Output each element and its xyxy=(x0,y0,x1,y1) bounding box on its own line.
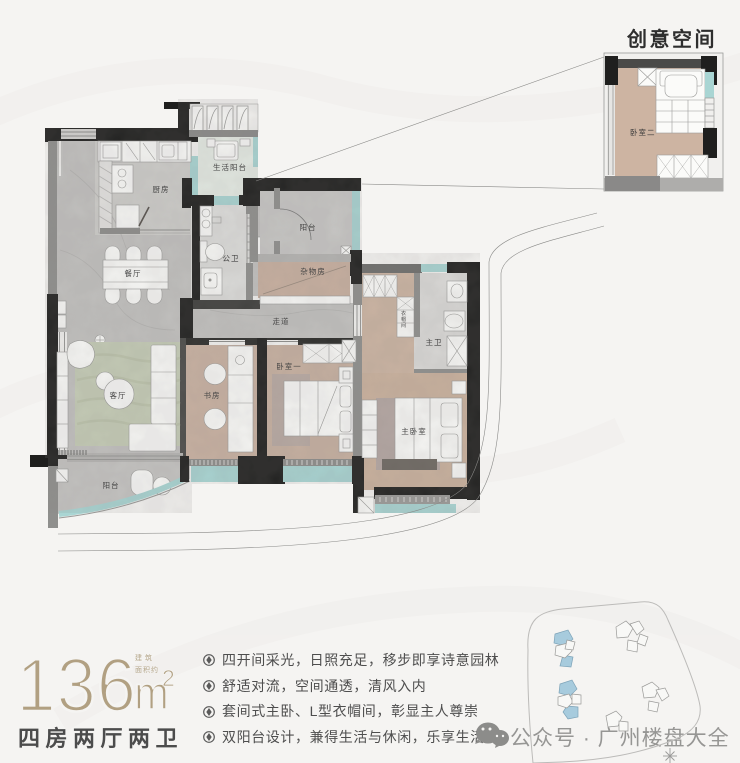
svg-text:建筑: 建筑 xyxy=(135,653,155,662)
svg-text:四开间采光，日照充足，移步即享诗意园林: 四开间采光，日照充足，移步即享诗意园林 xyxy=(222,652,499,668)
svg-text:面积约: 面积约 xyxy=(135,665,159,674)
svg-text:套间式主卧、L型衣帽间，彰显主人尊崇: 套间式主卧、L型衣帽间，彰显主人尊崇 xyxy=(222,703,479,719)
svg-text:双阳台设计，兼得生活与休闲，乐享生活: 双阳台设计，兼得生活与休闲，乐享生活 xyxy=(222,729,485,745)
svg-text:136: 136 xyxy=(17,644,137,727)
svg-text:创意空间: 创意空间 xyxy=(626,27,717,51)
svg-text:卧室二: 卧室二 xyxy=(630,127,656,137)
svg-text:2: 2 xyxy=(162,665,175,691)
svg-text:四房两厅两卫: 四房两厅两卫 xyxy=(18,726,183,751)
svg-text:舒适对流，空间通透，清风入内: 舒适对流，空间通透，清风入内 xyxy=(222,678,426,694)
